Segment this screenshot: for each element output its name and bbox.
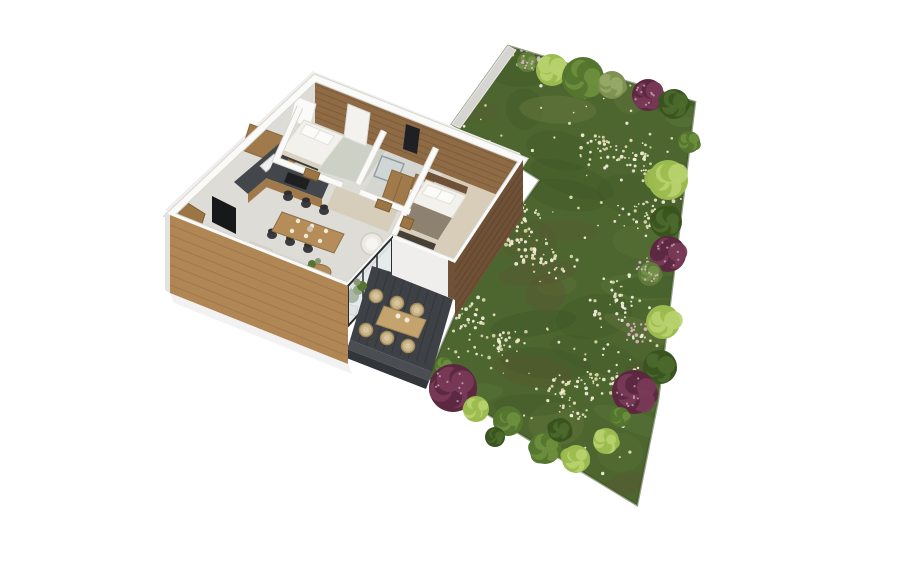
bush-speckle: [673, 243, 675, 245]
flower-dot: [552, 251, 555, 254]
flower-dot: [484, 104, 487, 107]
flower-dot: [463, 324, 465, 326]
flower-dot: [626, 339, 628, 341]
flower-dot: [619, 456, 621, 458]
flower-dot: [585, 392, 589, 396]
flower-dot: [502, 331, 505, 334]
flower-dot: [570, 255, 573, 258]
flower-dot: [539, 217, 541, 219]
flower-dot: [602, 348, 605, 351]
south-facade-wood-column: [448, 260, 455, 300]
flower-dot: [448, 348, 450, 350]
flower-dot: [476, 296, 480, 300]
flower-dot: [624, 307, 627, 310]
flower-dot: [646, 257, 648, 259]
flower-dot: [621, 305, 624, 308]
floorplan-render: [0, 0, 900, 574]
bush-speckle: [673, 264, 675, 266]
flower-dot: [539, 281, 541, 283]
flower-dot: [595, 139, 597, 141]
flower-dot: [615, 145, 617, 147]
flower-dot: [649, 133, 652, 136]
bush-speckle: [655, 275, 657, 277]
flower-dot: [594, 377, 597, 380]
flower-dot: [612, 281, 615, 284]
flower-dot: [600, 157, 602, 159]
flower-dot: [493, 313, 496, 316]
place-setting: [290, 229, 294, 233]
bush-speckle: [521, 62, 523, 64]
dining-chair-back: [302, 198, 310, 203]
flower-dot: [584, 387, 588, 391]
flower-dot: [638, 261, 641, 264]
flower-dot: [620, 294, 623, 297]
flower-dot: [602, 378, 606, 382]
flower-dot: [598, 136, 600, 138]
outdoor-place-setting: [405, 318, 410, 323]
flower-dot: [576, 380, 579, 383]
flower-dot: [555, 393, 557, 395]
flower-dot: [593, 383, 595, 385]
flower-dot: [632, 152, 634, 154]
flower-dot: [592, 380, 594, 382]
flower-dot: [635, 340, 639, 344]
flower-dot: [477, 322, 479, 324]
bush-puff: [657, 356, 675, 374]
flower-dot: [516, 350, 518, 352]
flower-dot: [614, 298, 618, 302]
flower-dot: [569, 196, 572, 199]
bush-puff: [610, 77, 623, 90]
flower-dot: [620, 155, 624, 159]
flower-dot: [524, 330, 527, 333]
outdoor-place-setting: [396, 314, 401, 319]
flower-dot: [607, 343, 610, 346]
flower-dot: [511, 243, 514, 246]
flower-dot: [644, 144, 647, 147]
coffee-table-plant: [315, 258, 321, 264]
flower-dot: [530, 231, 533, 234]
bush-speckle: [616, 392, 618, 394]
flower-dot: [646, 214, 648, 216]
flower-dot: [572, 411, 574, 413]
flower-dot: [535, 388, 538, 391]
flower-dot: [475, 308, 478, 311]
bush-green: [678, 131, 701, 153]
flower-dot: [469, 305, 472, 308]
flower-dot: [630, 110, 633, 113]
bush-speckle: [634, 385, 636, 387]
flower-dot: [643, 169, 645, 171]
flower-dot: [615, 302, 617, 304]
place-setting: [318, 239, 322, 243]
flower-dot: [474, 313, 477, 316]
flower-dot: [490, 367, 493, 370]
flower-dot: [644, 336, 646, 338]
flower-dot: [503, 373, 504, 374]
flower-dot: [472, 320, 475, 323]
bush-speckle: [458, 387, 460, 389]
flower-dot: [500, 135, 502, 137]
bush-speckle: [459, 373, 461, 375]
flower-dot: [603, 277, 606, 280]
flower-dot: [508, 336, 511, 339]
flower-dot: [648, 306, 651, 309]
flower-dot: [458, 356, 460, 358]
flower-dot: [624, 311, 627, 314]
flower-dot: [599, 150, 602, 153]
flower-dot: [460, 328, 462, 330]
flower-dot: [601, 472, 604, 475]
flower-dot: [631, 329, 634, 332]
flower-dot: [584, 416, 586, 418]
bush-green: [562, 57, 604, 99]
bush-speckle: [525, 65, 527, 67]
flower-dot: [507, 331, 510, 334]
flower-dot: [473, 346, 476, 349]
flower-dot: [645, 169, 647, 171]
flower-dot: [550, 259, 554, 263]
bush-puff: [667, 213, 679, 225]
flower-dot: [524, 210, 527, 213]
flower-dot: [558, 341, 561, 344]
bush-speckle: [531, 63, 533, 65]
bush-puff: [451, 370, 474, 393]
flower-dot: [622, 150, 625, 153]
flower-dot: [567, 381, 569, 383]
bush-puff: [507, 412, 521, 426]
flower-dot: [647, 217, 650, 220]
flower-dot: [625, 122, 628, 125]
flower-dot: [590, 399, 592, 401]
bush-speckle: [457, 400, 459, 402]
bush-darkgreen: [485, 427, 505, 447]
flower-dot: [475, 353, 478, 356]
flower-dot: [637, 227, 639, 229]
flower-dot: [642, 179, 645, 182]
bush-speckle: [648, 102, 650, 104]
flower-dot: [618, 319, 620, 321]
flower-dot: [452, 330, 455, 333]
flower-dot: [606, 156, 609, 159]
flower-dot: [523, 342, 525, 344]
flower-dot: [642, 203, 645, 206]
flower-dot: [568, 122, 571, 125]
flower-dot: [504, 338, 507, 341]
flower-dot: [555, 277, 557, 279]
bush-puff: [584, 68, 601, 85]
bush-speckle: [627, 405, 629, 407]
flower-dot: [635, 220, 638, 223]
flower-dot: [460, 325, 463, 328]
flower-dot: [613, 295, 617, 299]
flower-dot: [603, 98, 605, 100]
flower-dot: [464, 324, 467, 327]
flower-dot: [605, 164, 608, 167]
flower-dot: [629, 359, 631, 361]
flower-dot: [551, 249, 553, 251]
flower-dot: [628, 451, 631, 454]
flower-dot: [474, 326, 477, 329]
flower-dot: [508, 244, 511, 247]
bush-speckle: [644, 279, 646, 281]
flower-dot: [499, 333, 502, 336]
flower-dot: [580, 156, 582, 158]
flower-dot: [582, 413, 585, 416]
flower-dot: [626, 164, 629, 167]
bush-speckle: [644, 268, 646, 270]
bush-speckle: [648, 272, 650, 274]
flower-dot: [632, 218, 634, 220]
place-setting: [324, 229, 328, 233]
bush-speckle: [643, 85, 645, 87]
flower-dot: [641, 334, 644, 337]
flower-dot: [646, 225, 649, 228]
flower-dot: [608, 141, 610, 143]
flower-dot: [576, 385, 579, 388]
flower-dot: [497, 338, 500, 341]
flower-dot: [569, 397, 571, 399]
flower-dot: [634, 209, 637, 212]
dining-chair-back: [284, 191, 292, 196]
scene-svg: [0, 0, 900, 574]
flower-dot: [553, 136, 555, 138]
flower-dot: [563, 393, 566, 396]
flower-dot: [548, 272, 550, 274]
flower-dot: [469, 333, 471, 335]
flower-dot: [599, 377, 601, 379]
flower-dot: [533, 271, 535, 273]
flower-dot: [597, 225, 599, 227]
flower-dot: [531, 149, 534, 152]
bush-puff: [478, 400, 488, 410]
flower-dot: [461, 313, 463, 315]
flower-dot: [545, 242, 548, 245]
flower-dot: [548, 387, 551, 390]
bush-speckle: [637, 377, 639, 379]
flower-dot: [579, 146, 583, 150]
flower-dot: [504, 243, 508, 247]
bush-puff: [622, 412, 630, 420]
flower-dot: [627, 333, 630, 336]
flower-dot: [629, 84, 631, 86]
bush-lightgreen: [560, 445, 590, 473]
flower-dot: [625, 145, 628, 148]
flower-dot: [565, 383, 568, 386]
flower-dot: [543, 254, 545, 256]
flower-dot: [533, 248, 536, 251]
flower-dot: [644, 153, 646, 155]
flower-dot: [652, 205, 654, 207]
bush-speckle: [531, 67, 533, 69]
flower-dot: [632, 169, 635, 172]
flower-dot: [586, 175, 588, 177]
flower-dot: [544, 261, 547, 264]
flower-dot: [584, 353, 586, 355]
flower-dot: [577, 417, 580, 420]
flower-dot: [608, 370, 611, 373]
bush-speckle: [637, 397, 639, 399]
bush-lightgreen: [646, 305, 683, 339]
flower-dot: [597, 312, 601, 316]
flower-dot: [486, 336, 489, 339]
outdoor-chair-seat: [405, 343, 411, 349]
flower-dot: [559, 405, 561, 407]
flower-dot: [590, 140, 593, 143]
flower-dot: [528, 373, 530, 375]
flower-dot: [587, 142, 590, 145]
flower-dot: [618, 214, 620, 216]
flower-dot: [603, 143, 606, 146]
flower-dot: [649, 339, 652, 342]
bush-puff: [559, 423, 569, 433]
flower-dot: [609, 304, 611, 306]
bush-speckle: [435, 386, 437, 388]
flower-dot: [620, 179, 623, 182]
flower-dot: [594, 340, 597, 343]
flower-dot: [552, 211, 553, 212]
bush-speckle: [656, 274, 658, 276]
flower-dot: [591, 377, 593, 379]
flower-dot: [612, 156, 615, 159]
flower-dot: [506, 359, 509, 362]
flower-dot: [644, 215, 646, 217]
flower-dot: [636, 268, 639, 271]
flower-dot: [611, 377, 615, 381]
flower-dot: [617, 158, 620, 161]
flower-dot: [640, 323, 642, 325]
flower-dot: [516, 230, 519, 233]
flower-dot: [630, 327, 632, 329]
flower-dot: [580, 379, 582, 381]
bush-speckle: [632, 404, 634, 406]
bush-darkgreen: [650, 206, 682, 238]
bush-speckle: [526, 62, 528, 64]
flower-dot: [613, 220, 616, 223]
bush-speckle: [635, 98, 637, 100]
bush-speckle: [626, 403, 628, 405]
flower-dot: [467, 350, 469, 352]
bush-speckle: [645, 266, 647, 268]
flower-dot: [561, 268, 564, 271]
flower-dot: [642, 157, 645, 160]
flower-dot: [533, 258, 535, 260]
dining-chair-back: [320, 205, 328, 210]
bush-speckle: [637, 87, 639, 89]
flower-dot: [593, 313, 597, 317]
flower-dot: [569, 406, 570, 407]
flower-dot: [589, 158, 592, 161]
bathroom-mirror: [403, 124, 420, 154]
flower-dot: [481, 316, 485, 320]
flower-dot: [534, 253, 536, 255]
flower-dot: [574, 385, 576, 387]
flower-dot: [463, 125, 466, 128]
flower-dot: [602, 139, 605, 142]
flower-dot: [526, 208, 528, 210]
flower-dot: [598, 141, 602, 145]
flower-dot: [596, 384, 599, 387]
flower-dot: [524, 220, 527, 223]
bush-puff: [664, 311, 683, 330]
flower-dot: [524, 229, 528, 233]
bush-speckle: [460, 392, 462, 394]
flower-dot: [540, 107, 542, 109]
bush-speckle: [621, 394, 623, 396]
flower-dot: [671, 137, 674, 140]
flower-dot: [581, 133, 585, 137]
flower-dot: [634, 165, 637, 168]
flower-dot: [602, 354, 604, 356]
flower-dot: [561, 381, 564, 384]
flower-dot: [480, 119, 482, 121]
flower-dot: [609, 383, 612, 386]
flower-dot: [532, 263, 534, 265]
flower-dot: [535, 209, 537, 211]
flower-dot: [481, 354, 483, 356]
flower-dot: [515, 238, 519, 242]
flower-dot: [616, 364, 618, 366]
bush-puff: [673, 94, 688, 109]
flower-dot: [641, 340, 643, 342]
flower-dot: [589, 151, 592, 154]
flower-dot: [511, 54, 514, 57]
flower-dot: [662, 200, 666, 204]
outdoor-chair-seat: [373, 293, 379, 299]
flower-dot: [586, 106, 588, 108]
bush-speckle: [650, 273, 652, 275]
flower-dot: [501, 337, 503, 339]
flower-dot: [600, 201, 603, 204]
flower-dot: [594, 310, 598, 314]
flower-dot: [482, 298, 486, 302]
flower-dot: [514, 262, 518, 266]
flower-dot: [615, 149, 617, 151]
flower-dot: [587, 163, 590, 166]
flower-dot: [600, 326, 602, 328]
flower-dot: [520, 238, 523, 241]
flower-dot: [482, 322, 485, 325]
flower-dot: [624, 157, 626, 159]
flower-dot: [640, 151, 644, 155]
flower-dot: [638, 266, 640, 268]
flower-dot: [576, 258, 579, 261]
bush-speckle: [641, 268, 643, 270]
flower-dot: [569, 399, 571, 401]
flower-dot: [497, 346, 501, 350]
flower-dot: [634, 154, 637, 157]
flower-dot: [520, 255, 523, 258]
flower-dot: [577, 207, 580, 210]
flower-dot: [466, 318, 470, 322]
bush-puff: [606, 435, 616, 445]
flower-dot: [522, 258, 525, 261]
flower-dot: [644, 220, 648, 224]
flower-dot: [537, 213, 540, 216]
place-setting: [296, 219, 300, 223]
flower-dot: [498, 351, 500, 353]
flower-dot: [584, 236, 587, 239]
bush-speckle: [437, 384, 439, 386]
flower-dot: [616, 280, 618, 282]
flower-dot: [468, 339, 470, 341]
flower-dot: [517, 248, 520, 251]
flower-dot: [499, 343, 501, 345]
deck-plant: [354, 279, 361, 286]
flower-dot: [559, 411, 561, 413]
flower-dot: [610, 289, 613, 292]
flower-dot: [617, 351, 619, 353]
